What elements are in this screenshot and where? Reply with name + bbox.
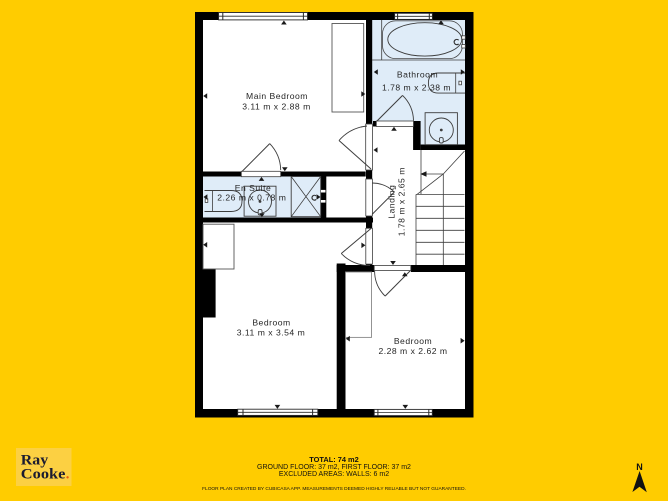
svg-text:FLOOR PLAN CREATED BY CUBICASA: FLOOR PLAN CREATED BY CUBICASA APP. MEAS…	[202, 486, 466, 492]
svg-text:En Suite: En Suite	[235, 183, 272, 193]
svg-text:Bedroom: Bedroom	[394, 336, 432, 346]
svg-text:2.28 m x 2.62 m: 2.28 m x 2.62 m	[378, 346, 447, 356]
svg-text:GROUND FLOOR: 37 m2, FIRST FLO: GROUND FLOOR: 37 m2, FIRST FLOOR: 37 m2	[257, 464, 411, 471]
svg-text:1.78 m x 2.65 m: 1.78 m x 2.65 m	[397, 167, 407, 236]
svg-text:Bedroom: Bedroom	[252, 317, 290, 327]
svg-text:1.78 m x 2.38 m: 1.78 m x 2.38 m	[382, 82, 451, 92]
svg-text:N: N	[636, 462, 643, 472]
svg-text:3.11 m x 3.54 m: 3.11 m x 3.54 m	[237, 328, 305, 338]
svg-text:Bathroom: Bathroom	[397, 69, 438, 79]
svg-text:Cooke: Cooke	[21, 467, 66, 483]
svg-text:Landing: Landing	[386, 185, 396, 219]
svg-text:3.11 m x 2.88 m: 3.11 m x 2.88 m	[242, 101, 310, 111]
svg-text:EXCLUDED AREAS: WALLS: 6 m2: EXCLUDED AREAS: WALLS: 6 m2	[279, 471, 389, 478]
svg-text:Main Bedroom: Main Bedroom	[246, 91, 308, 101]
svg-text:.: .	[66, 467, 70, 483]
svg-text:2.26 m x 0.78 m: 2.26 m x 0.78 m	[217, 193, 286, 203]
svg-text:TOTAL: 74 m2: TOTAL: 74 m2	[309, 455, 358, 464]
